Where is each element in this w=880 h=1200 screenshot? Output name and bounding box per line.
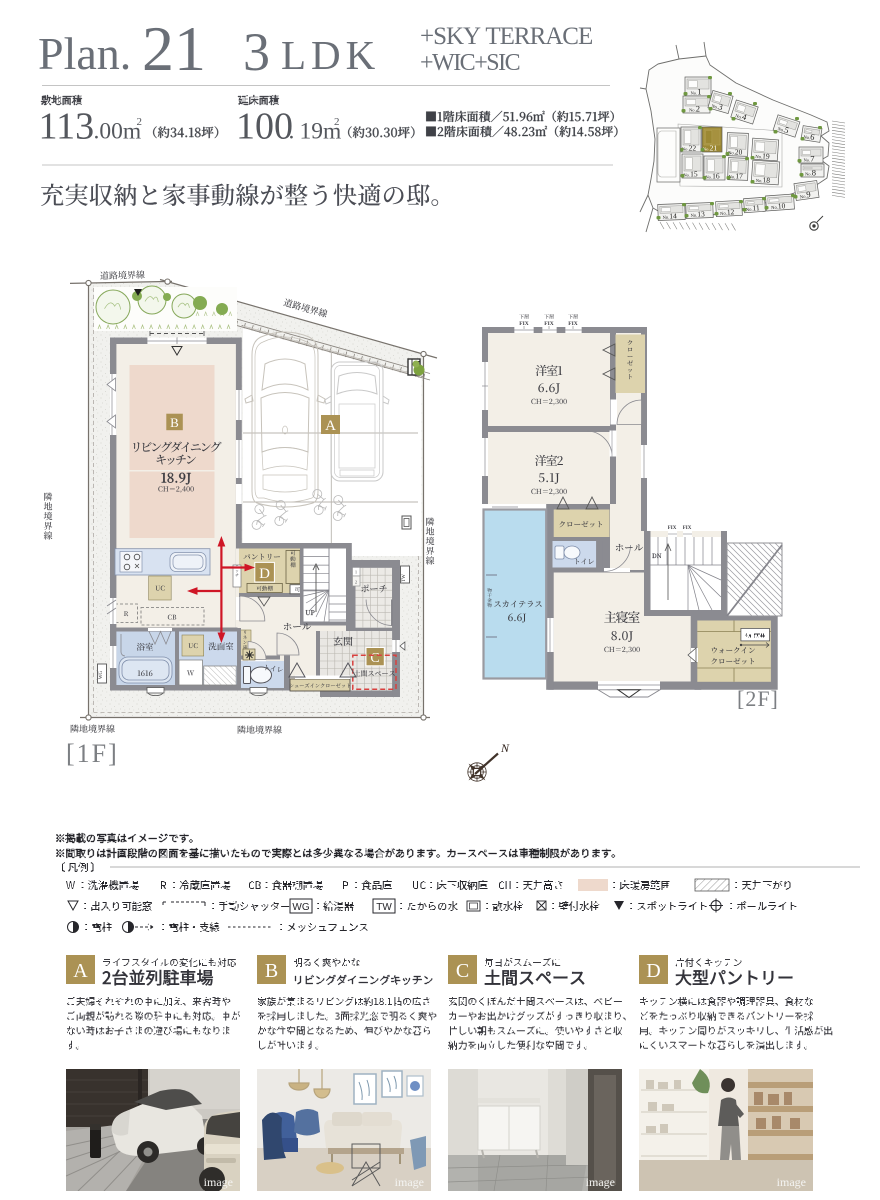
svg-text:D: D [646, 960, 660, 982]
svg-text:21: 21 [142, 13, 206, 84]
svg-text:D: D [259, 566, 270, 582]
svg-text:image: image [204, 1175, 233, 1189]
svg-text:Plan.: Plan. [38, 28, 131, 79]
svg-text:C: C [456, 960, 469, 982]
svg-text:FIX: FIX [668, 526, 677, 531]
svg-text:1: 1 [355, 570, 357, 575]
svg-text:TW: TW [376, 902, 392, 913]
svg-text:3: 3 [243, 22, 270, 82]
svg-text:image: image [586, 1175, 615, 1189]
svg-text:WG: WG [292, 902, 309, 913]
svg-text:image: image [395, 1175, 424, 1189]
svg-text:.: . [289, 119, 295, 145]
svg-text:2: 2 [355, 580, 357, 585]
svg-text:WG: WG [99, 670, 104, 679]
svg-text:A: A [325, 418, 336, 434]
svg-text:image: image [777, 1175, 806, 1189]
svg-text:B: B [170, 415, 179, 430]
svg-text:2: 2 [137, 116, 143, 128]
svg-text:TW: TW [402, 574, 407, 582]
svg-text:[1F]: [1F] [66, 739, 119, 768]
svg-text:LDK: LDK [281, 32, 380, 78]
svg-text:C: C [370, 651, 379, 666]
svg-text:FIX: FIX [683, 526, 692, 531]
svg-text:113: 113 [39, 106, 95, 148]
svg-text:100: 100 [236, 106, 293, 148]
svg-text:2: 2 [334, 116, 340, 128]
svg-text:+SKY TERRACE: +SKY TERRACE [420, 23, 593, 50]
svg-text:A: A [73, 960, 88, 982]
svg-text:B: B [265, 960, 278, 982]
svg-text:.00m: .00m [94, 119, 142, 145]
svg-text:[2F]: [2F] [737, 686, 779, 711]
svg-text:N: N [500, 741, 510, 755]
svg-text:+WIC+SIC: +WIC+SIC [420, 50, 520, 76]
